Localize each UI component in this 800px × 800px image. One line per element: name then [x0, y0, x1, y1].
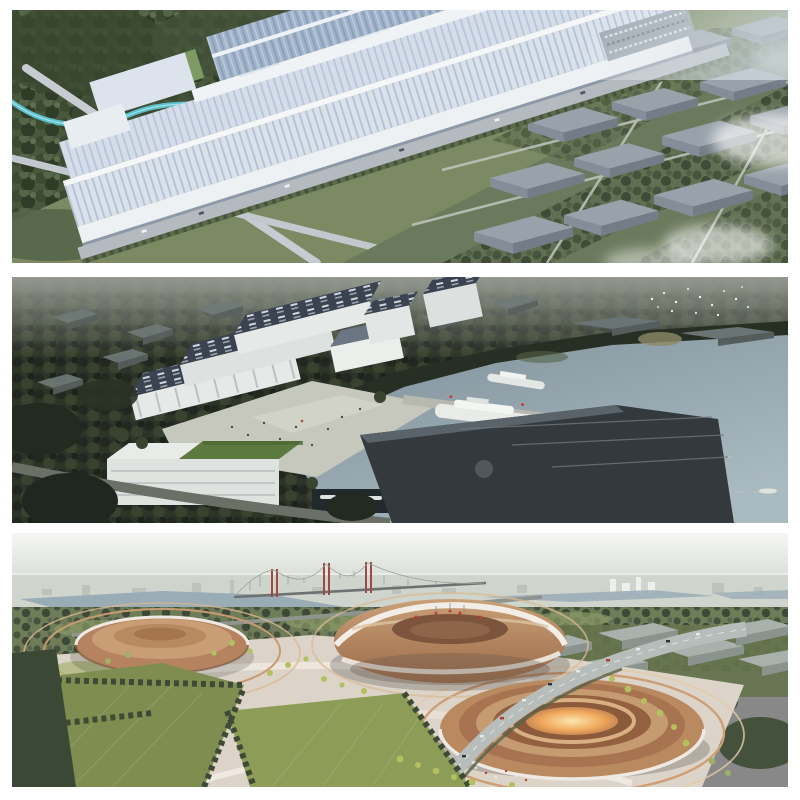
render-panel-waterfront	[12, 277, 788, 523]
arena-complex-image	[12, 533, 788, 787]
render-panel-factory	[12, 10, 788, 263]
stadium-main	[330, 599, 570, 691]
screenshot-root	[0, 0, 800, 800]
factory-aerial-image	[12, 10, 788, 263]
waterfront-campus-image	[12, 277, 788, 523]
render-panel-arenas	[12, 533, 788, 787]
corner-haze	[588, 10, 788, 80]
